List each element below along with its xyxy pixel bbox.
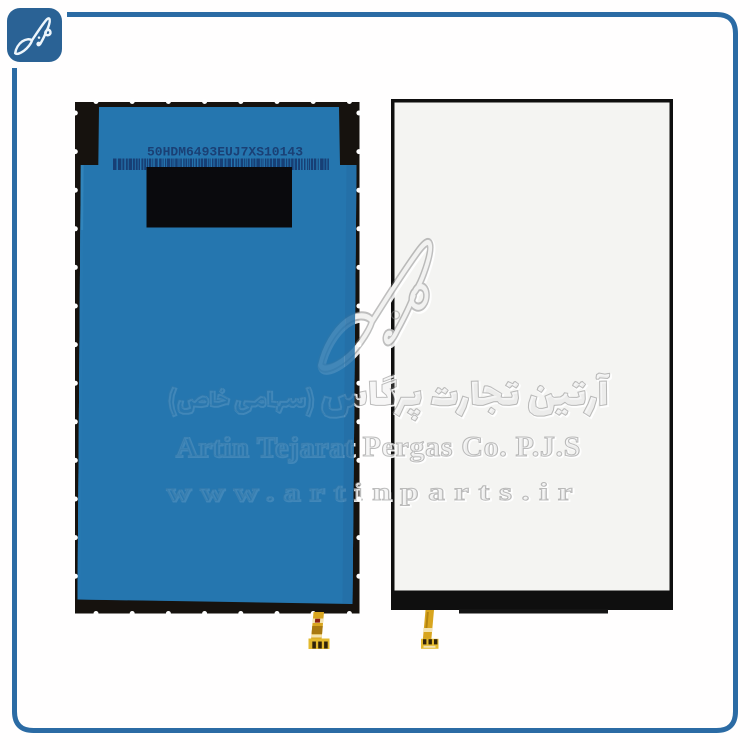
svg-text:50HDM6493EUJ7XS10143: 50HDM6493EUJ7XS10143 bbox=[147, 145, 303, 160]
